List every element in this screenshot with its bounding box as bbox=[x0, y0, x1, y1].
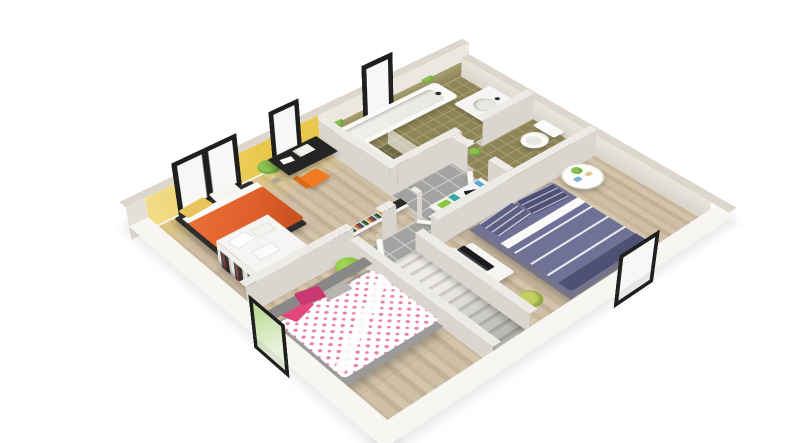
wall-face bbox=[417, 191, 422, 220]
sink-faucet bbox=[494, 97, 502, 101]
floor-plan-scene bbox=[125, 69, 733, 443]
wall-face bbox=[382, 205, 397, 240]
linen-stack bbox=[227, 231, 255, 249]
toilet-seat bbox=[522, 134, 544, 147]
linen-stack bbox=[251, 242, 281, 260]
linen-stack bbox=[250, 222, 276, 238]
floor-plan-stage bbox=[0, 0, 800, 443]
